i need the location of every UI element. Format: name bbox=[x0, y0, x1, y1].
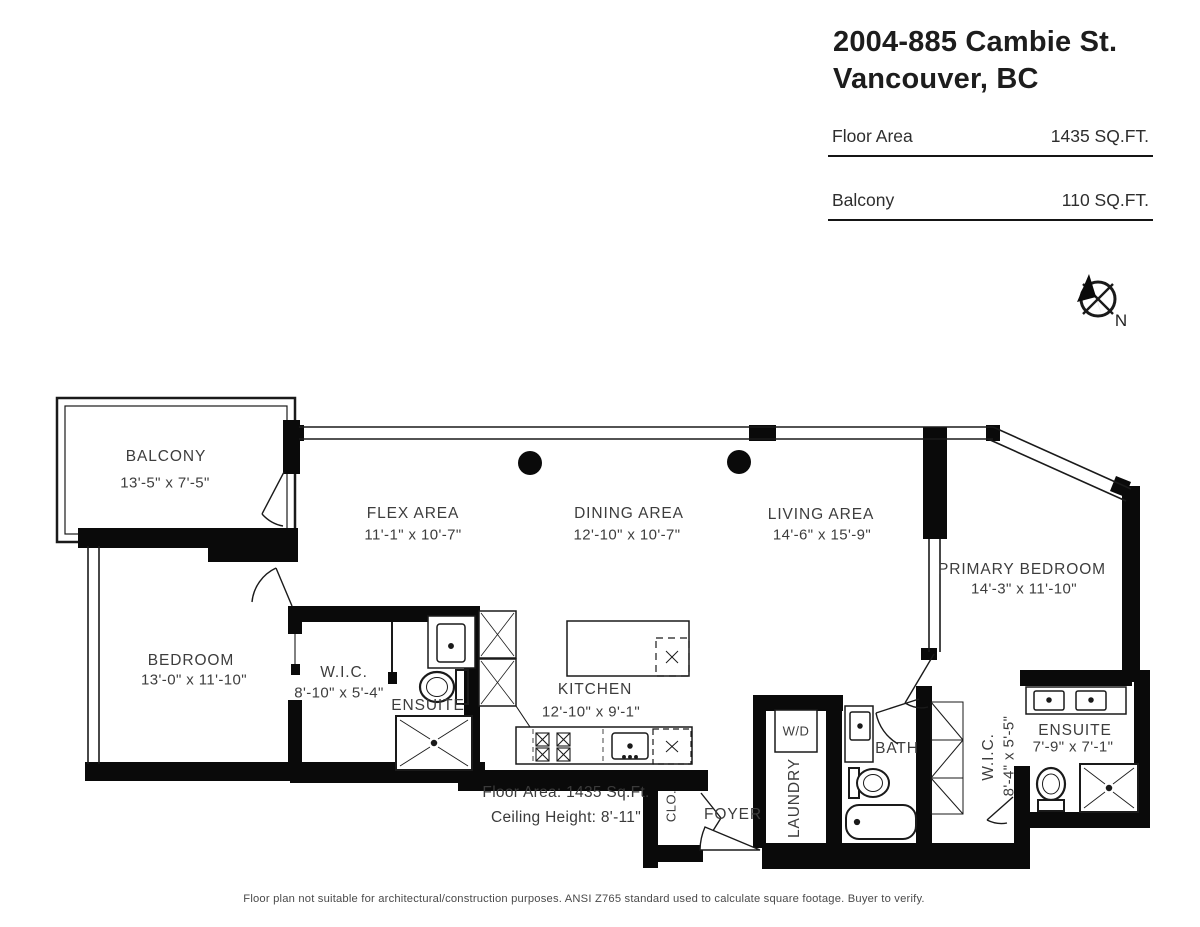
room-label-ensuite2: ENSUITE bbox=[1038, 722, 1111, 740]
room-label-bedroom: BEDROOM bbox=[148, 652, 234, 670]
room-label-bath: BATH bbox=[875, 740, 919, 758]
room-dims-flex: 11'-1" x 10'-7" bbox=[364, 527, 461, 544]
floor-area-value: 1435 SQ.FT. bbox=[1051, 126, 1149, 147]
room-dims-primary-bedroom: 14'-3" x 11'-10" bbox=[971, 581, 1077, 598]
room-label-wic1: W.I.C. bbox=[320, 664, 368, 682]
note-ceiling-height: Ceiling Height: 8'-11" bbox=[491, 809, 641, 827]
disclaimer-text: Floor plan not suitable for architectura… bbox=[243, 893, 924, 905]
floor-area-row: Floor Area 1435 SQ.FT. bbox=[828, 124, 1153, 157]
room-dims-living: 14'-6" x 15'-9" bbox=[773, 527, 871, 544]
room-dims-wic1: 8'-10" x 5'-4" bbox=[294, 685, 384, 702]
ensuite1-fixtures bbox=[396, 616, 475, 770]
note-floor-area: Floor Area: 1435 Sq.Ft. bbox=[482, 784, 649, 802]
room-label-foyer: FOYER bbox=[704, 806, 762, 824]
room-label-flex: FLEX AREA bbox=[367, 505, 460, 523]
room-label-laundry: LAUNDRY bbox=[786, 758, 804, 838]
room-dims-wic2: 8'-4" x 5'-5" bbox=[1001, 716, 1018, 797]
room-label-wic2: W.I.C. bbox=[980, 733, 998, 781]
room-label-closet: CLO. bbox=[664, 790, 679, 822]
room-dims-balcony: 13'-5" x 7'-5" bbox=[120, 475, 210, 492]
floor-area-label: Floor Area bbox=[832, 126, 913, 147]
balcony-area-label: Balcony bbox=[832, 190, 894, 211]
room-dims-kitchen: 12'-10" x 9'-1" bbox=[542, 704, 640, 721]
room-label-balcony: BALCONY bbox=[126, 448, 206, 466]
page-title: 2004-885 Cambie St. Vancouver, BC bbox=[833, 24, 1117, 98]
balcony-area-row: Balcony 110 SQ.FT. bbox=[828, 187, 1153, 221]
balcony-outline bbox=[57, 398, 295, 542]
room-dims-ensuite2: 7'-9" x 7'-1" bbox=[1033, 739, 1114, 756]
room-label-primary-bedroom: PRIMARY BEDROOM bbox=[938, 561, 1106, 579]
room-dims-dining: 12'-10" x 10'-7" bbox=[574, 527, 681, 544]
washer-dryer-label: W/D bbox=[783, 724, 810, 739]
room-dims-bedroom: 13'-0" x 11'-10" bbox=[141, 672, 247, 689]
north-label: N bbox=[1115, 311, 1127, 331]
room-label-living: LIVING AREA bbox=[768, 506, 874, 524]
floor-plan-page: 2004-885 Cambie St. Vancouver, BC Floor … bbox=[0, 0, 1200, 927]
wic2-shelving bbox=[931, 702, 963, 814]
balcony-area-value: 110 SQ.FT. bbox=[1062, 190, 1149, 211]
room-label-kitchen: KITCHEN bbox=[558, 681, 632, 699]
address-line1: 2004-885 Cambie St. bbox=[833, 24, 1117, 61]
compass-icon bbox=[1077, 274, 1115, 316]
address-line2: Vancouver, BC bbox=[833, 61, 1117, 98]
room-label-dining: DINING AREA bbox=[574, 505, 684, 523]
room-label-ensuite1: ENSUITE bbox=[391, 697, 464, 715]
